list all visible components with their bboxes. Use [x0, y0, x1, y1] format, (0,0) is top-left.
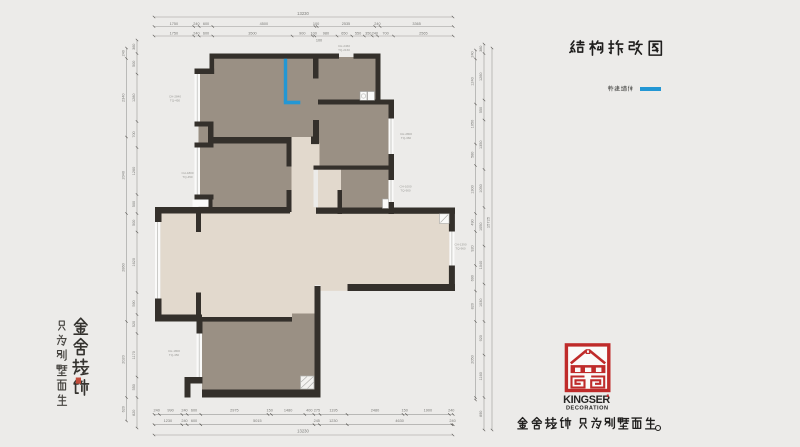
svg-text:240: 240: [449, 419, 455, 423]
svg-text:820: 820: [471, 303, 475, 309]
svg-text:1195: 1195: [329, 408, 337, 412]
svg-text:500: 500: [132, 201, 136, 207]
svg-text:920: 920: [479, 335, 483, 341]
svg-text:690: 690: [471, 275, 475, 281]
svg-text:1260: 1260: [479, 73, 483, 81]
svg-text:350: 350: [365, 31, 371, 35]
svg-text:990: 990: [167, 408, 173, 412]
svg-text:1480: 1480: [284, 408, 292, 412]
svg-text:1030: 1030: [479, 299, 483, 307]
svg-text:500: 500: [132, 220, 136, 226]
svg-text:1260: 1260: [132, 167, 136, 175]
svg-text:890: 890: [479, 411, 483, 417]
svg-text:550: 550: [355, 31, 361, 35]
svg-text:400: 400: [306, 408, 312, 412]
svg-text:2040: 2040: [122, 171, 126, 179]
svg-text:1750: 1750: [170, 22, 178, 26]
svg-text:1750: 1750: [170, 31, 178, 35]
svg-text:490: 490: [471, 219, 475, 225]
svg-text:1620: 1620: [132, 258, 136, 266]
svg-text:13230: 13230: [297, 11, 309, 16]
svg-text:1160: 1160: [479, 372, 483, 380]
svg-text:900: 900: [299, 31, 305, 35]
svg-text:1170: 1170: [132, 351, 136, 359]
svg-text:TQ-960: TQ-960: [455, 247, 466, 251]
svg-text:TQ-450: TQ-450: [182, 175, 193, 179]
svg-text:820: 820: [132, 410, 136, 416]
svg-text:700: 700: [132, 131, 136, 137]
svg-text:2975: 2975: [230, 408, 238, 412]
svg-text:980: 980: [323, 31, 329, 35]
svg-text:240: 240: [154, 408, 160, 412]
svg-text:13230: 13230: [297, 428, 309, 433]
svg-text:2050: 2050: [471, 355, 475, 363]
svg-text:600: 600: [203, 31, 209, 35]
svg-text:1050: 1050: [479, 223, 483, 231]
svg-text:240: 240: [181, 408, 187, 412]
svg-text:650: 650: [341, 31, 347, 35]
svg-text:360: 360: [132, 44, 136, 50]
svg-text:2535: 2535: [342, 22, 350, 26]
svg-text:100: 100: [310, 31, 316, 35]
svg-text:TQ-900: TQ-900: [400, 189, 411, 193]
svg-text:245: 245: [314, 419, 320, 423]
svg-text:1280: 1280: [132, 94, 136, 102]
svg-text:240: 240: [372, 31, 378, 35]
svg-text:TQ-450: TQ-450: [170, 99, 181, 103]
svg-text:3500: 3500: [248, 31, 256, 35]
svg-text:2860: 2860: [122, 263, 126, 271]
svg-text:1900: 1900: [424, 408, 432, 412]
svg-text:TQ-2160: TQ-2160: [338, 48, 350, 52]
svg-text:100: 100: [313, 22, 319, 26]
svg-text:240: 240: [193, 31, 199, 35]
svg-text:600: 600: [191, 408, 197, 412]
svg-text:520: 520: [132, 321, 136, 327]
svg-text:240: 240: [448, 408, 454, 412]
svg-text:TQ-450: TQ-450: [169, 353, 180, 357]
svg-text:590: 590: [132, 300, 136, 306]
svg-text:150: 150: [267, 408, 273, 412]
svg-text:240: 240: [374, 22, 380, 26]
svg-text:4630: 4630: [395, 419, 403, 423]
svg-text:1050: 1050: [471, 120, 475, 128]
svg-text:3365: 3365: [412, 22, 420, 26]
svg-text:550: 550: [132, 384, 136, 390]
svg-text:15725: 15725: [486, 216, 491, 228]
svg-text:2565: 2565: [419, 31, 427, 35]
svg-text:100: 100: [316, 38, 322, 42]
svg-text:550: 550: [479, 107, 483, 113]
svg-text:2340: 2340: [122, 94, 126, 102]
svg-text:1350: 1350: [479, 141, 483, 149]
svg-text:500: 500: [132, 61, 136, 67]
svg-text:1040: 1040: [479, 261, 483, 269]
svg-text:600: 600: [191, 419, 197, 423]
svg-text:1240: 1240: [471, 77, 475, 85]
svg-text:2480: 2480: [371, 408, 379, 412]
svg-text:TQ-360: TQ-360: [401, 136, 412, 140]
svg-text:240: 240: [193, 22, 199, 26]
svg-text:620: 620: [122, 406, 126, 412]
svg-text:700: 700: [382, 31, 388, 35]
svg-text:1230: 1230: [329, 419, 337, 423]
svg-text:920: 920: [471, 245, 475, 251]
svg-text:240: 240: [471, 51, 475, 57]
svg-text:240: 240: [181, 419, 187, 423]
svg-text:1300: 1300: [471, 185, 475, 193]
svg-text:380: 380: [479, 46, 483, 52]
svg-text:240: 240: [122, 50, 126, 56]
svg-text:4500: 4500: [260, 22, 268, 26]
svg-text:600: 600: [203, 22, 209, 26]
svg-text:KINGSER: KINGSER: [563, 394, 610, 406]
svg-text:DECORATION: DECORATION: [566, 405, 609, 411]
svg-text:275: 275: [314, 408, 320, 412]
svg-text:150: 150: [402, 408, 408, 412]
svg-text:5015: 5015: [253, 419, 261, 423]
svg-text:1050: 1050: [479, 184, 483, 192]
svg-text:2020: 2020: [122, 355, 126, 363]
svg-text:1230: 1230: [164, 419, 172, 423]
svg-text:580: 580: [471, 152, 475, 158]
